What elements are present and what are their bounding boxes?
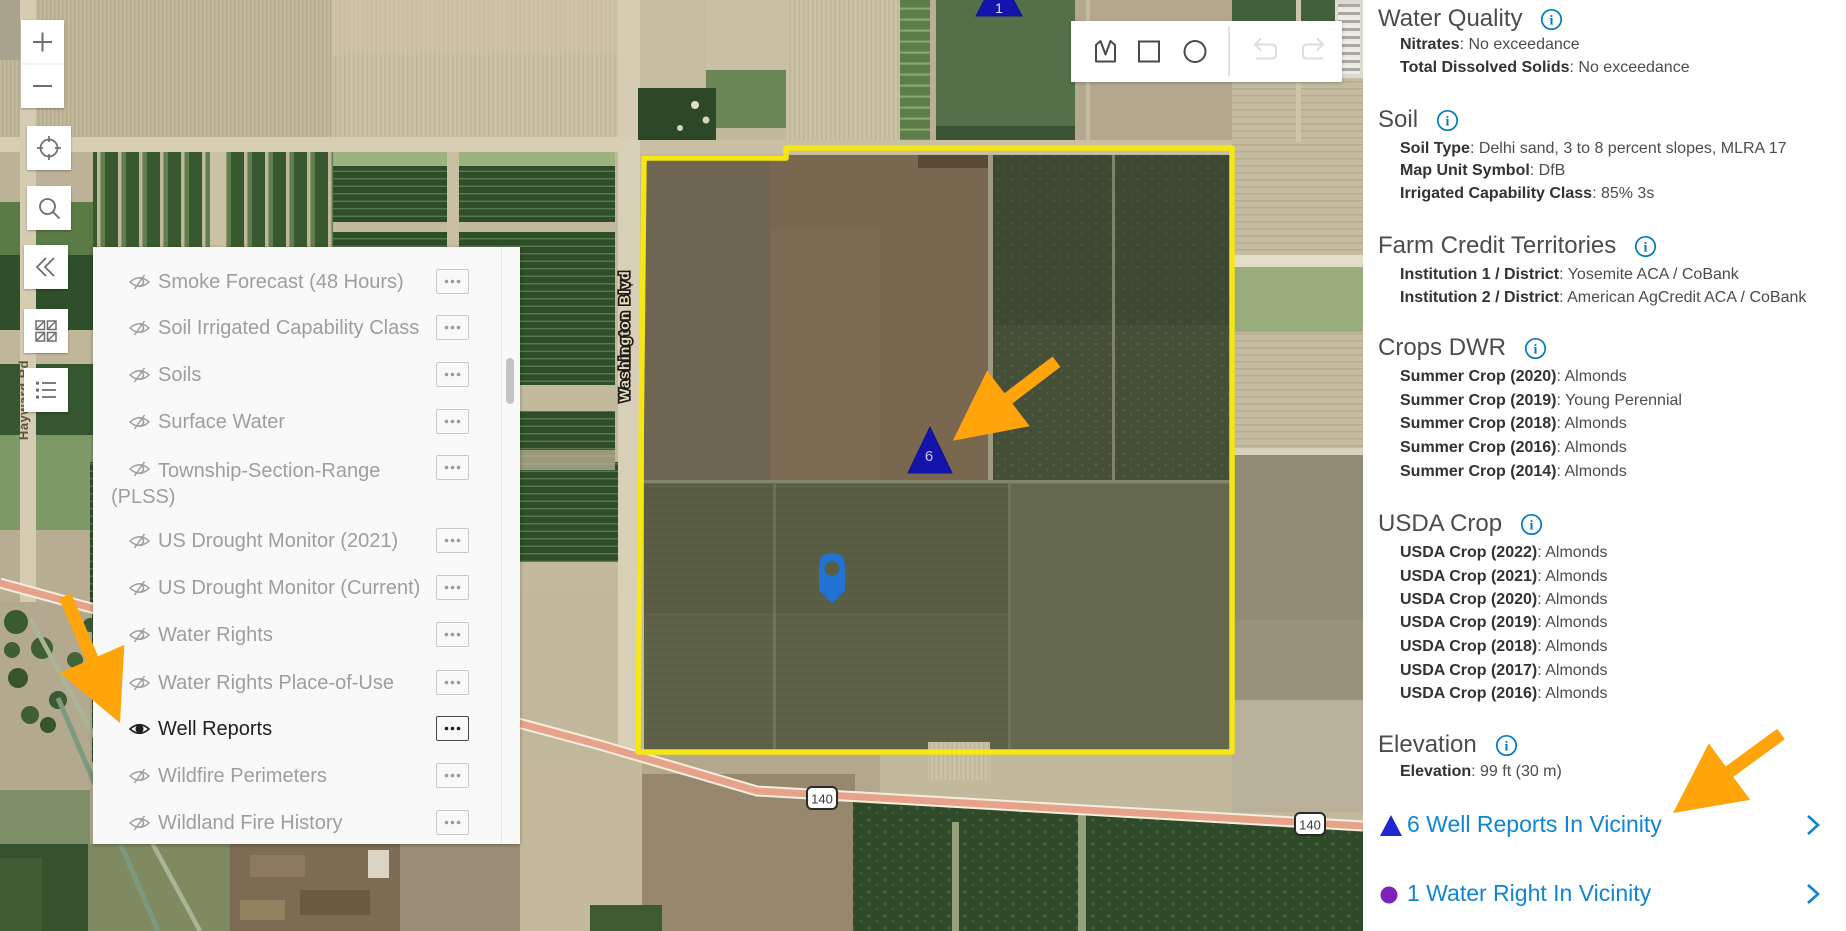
svg-text:140: 140 [1299, 818, 1321, 833]
svg-text:i: i [1530, 519, 1534, 534]
svg-text:140: 140 [811, 792, 833, 807]
svg-text:1: 1 [995, 0, 1003, 16]
svg-text:Washington Blvd: Washington Blvd [616, 270, 632, 402]
svg-text:i: i [1550, 14, 1554, 29]
svg-text:i: i [1446, 115, 1450, 130]
svg-text:6: 6 [925, 448, 933, 465]
svg-text:i: i [1505, 740, 1509, 755]
svg-text:i: i [1534, 343, 1538, 358]
svg-text:i: i [1644, 241, 1648, 256]
